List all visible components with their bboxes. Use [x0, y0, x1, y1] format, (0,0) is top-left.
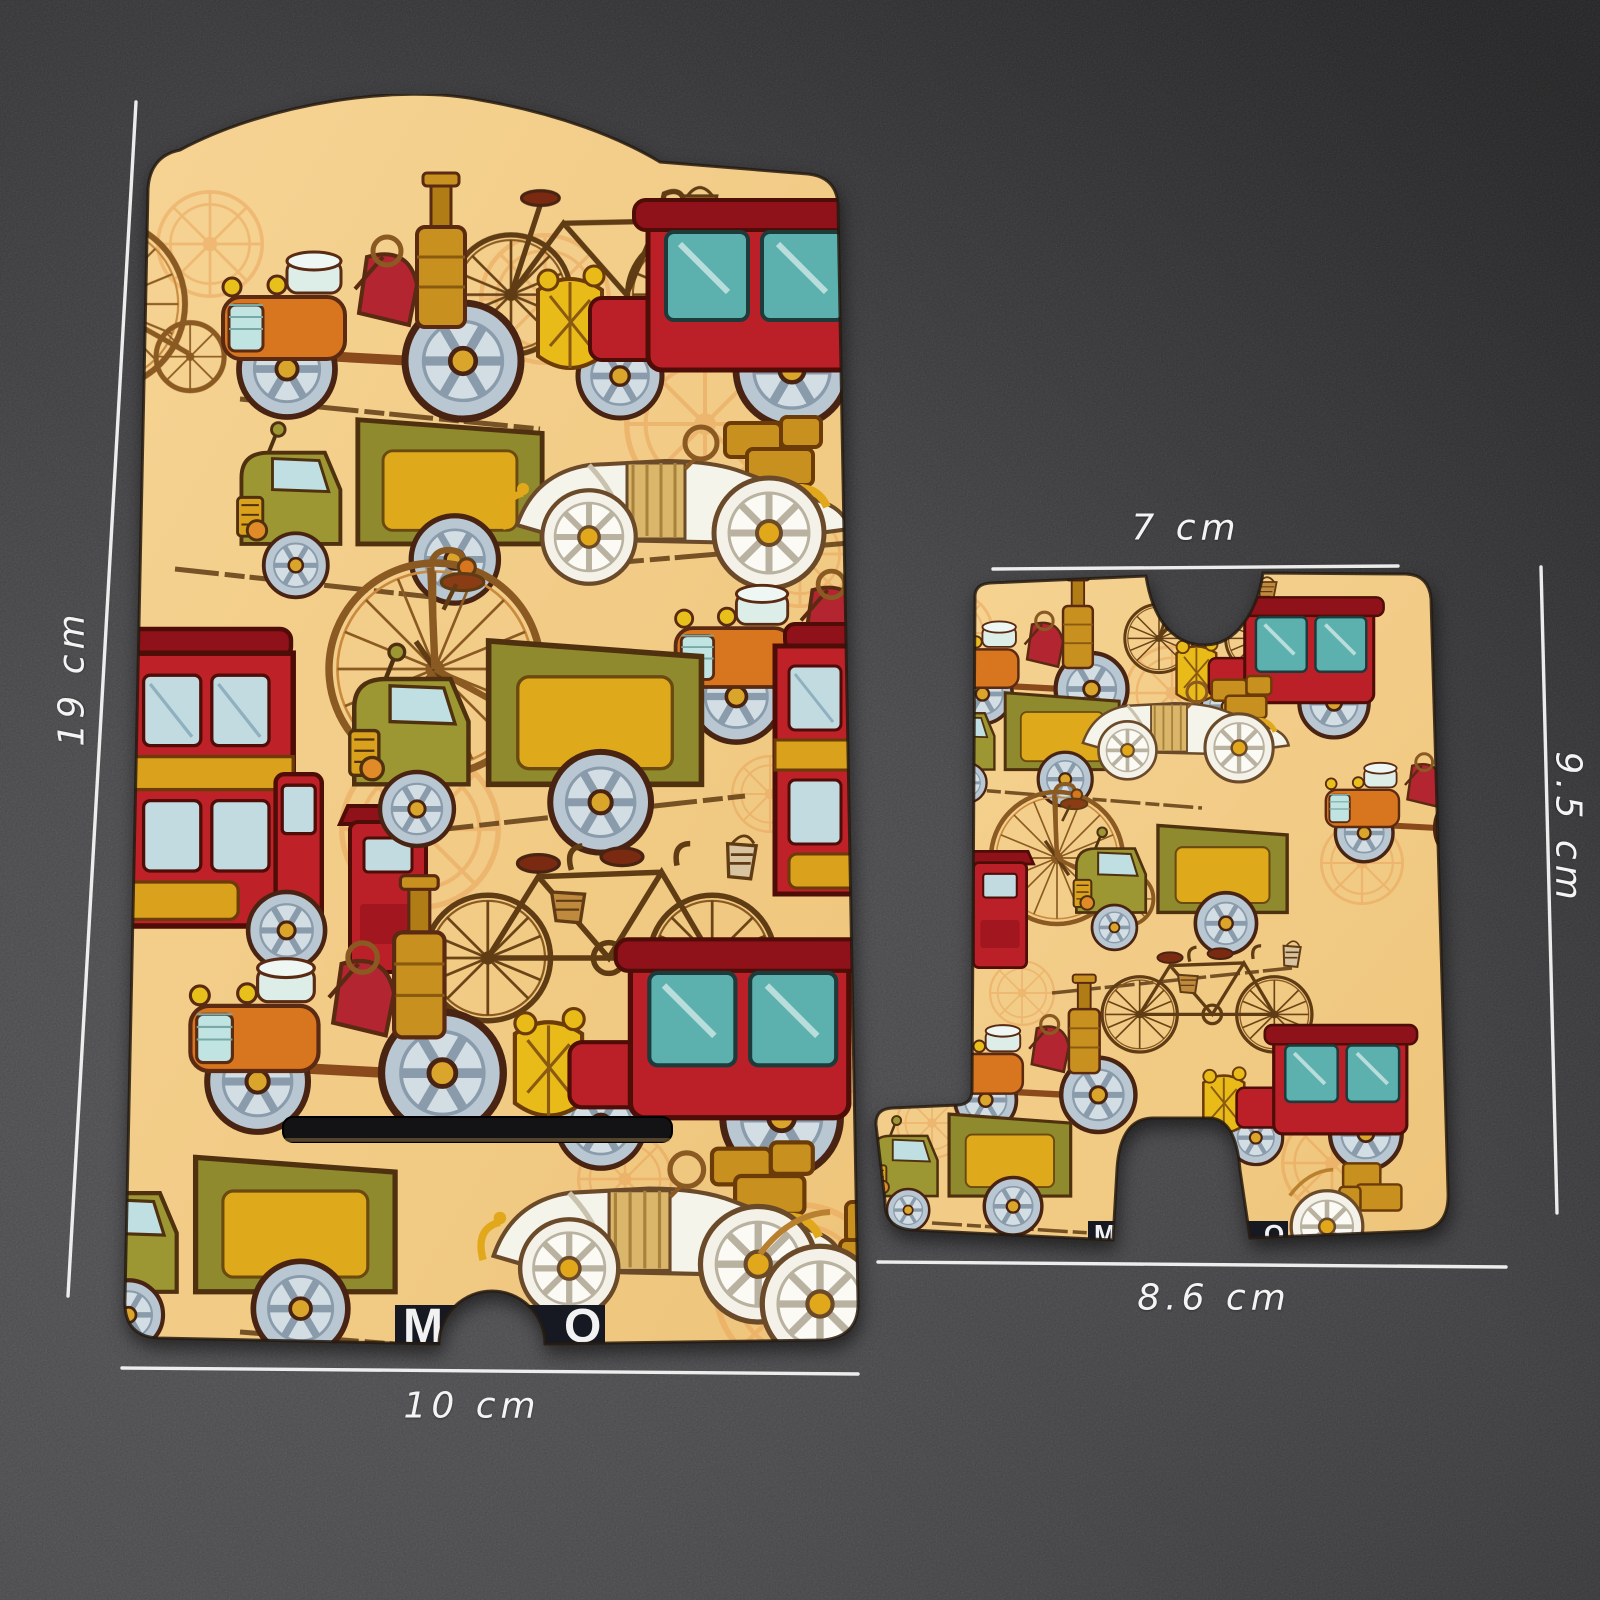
phone-stand-base-piece: M O: [872, 563, 1454, 1257]
double-decker-bus-icon: [120, 629, 325, 969]
dimension-label-base-bottom-width: 8.6 cm: [1137, 1278, 1291, 1319]
dimension-label-back-plate-width: 10 cm: [403, 1386, 540, 1427]
logo-letter-left: M: [403, 1300, 443, 1346]
dimension-line-back-plate-width: [122, 1368, 858, 1374]
logo-band: M O: [395, 1300, 605, 1346]
dimension-label-base-top-width: 7 cm: [1131, 508, 1240, 549]
logo-letter-right: O: [1264, 1219, 1284, 1249]
dimension-label-base-height: 9.5 cm: [1548, 751, 1589, 905]
phone-stand-back-plate: M O: [120, 94, 862, 1346]
phone-slot-lip: [285, 1138, 670, 1142]
logo-band: M O: [1088, 1219, 1288, 1249]
logo-letter-right: O: [564, 1300, 601, 1346]
dimension-line-base-bottom-width: [878, 1262, 1506, 1267]
red-kiosk-icon: [966, 851, 1033, 967]
dimension-label-back-plate-height: 19 cm: [52, 609, 93, 746]
